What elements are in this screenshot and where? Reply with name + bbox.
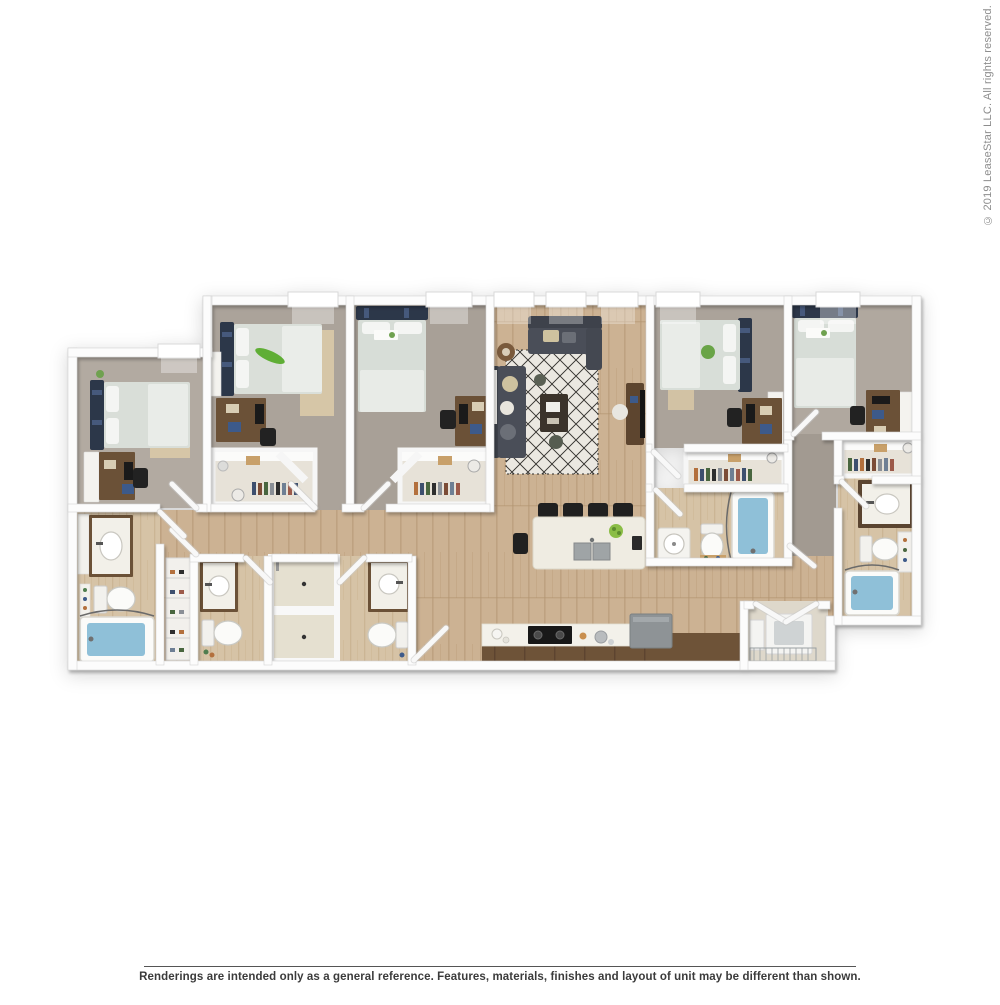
toilet	[701, 524, 723, 559]
pedestal-sink	[658, 528, 690, 560]
toilet	[368, 622, 408, 648]
window	[288, 292, 338, 324]
toilet	[860, 536, 898, 562]
bar-stool	[613, 503, 633, 518]
kettle	[595, 631, 607, 643]
chair	[850, 406, 865, 425]
footer-divider	[144, 966, 856, 967]
fruit-bowl	[609, 524, 623, 538]
shower-stall-upper	[271, 557, 337, 609]
vanity	[89, 515, 133, 577]
drain	[302, 635, 306, 639]
chair	[727, 408, 742, 427]
copyright-watermark: © 2019 LeaseStar LLC. All rights reserve…	[982, 14, 994, 226]
bar-stool	[538, 503, 558, 518]
chair	[260, 428, 276, 446]
window	[546, 292, 586, 324]
disclaimer-text: Renderings are intended only as a genera…	[0, 971, 1000, 983]
bed	[356, 306, 428, 412]
chair	[133, 468, 148, 488]
bar-stool	[513, 533, 528, 554]
toilet	[202, 620, 242, 646]
bathroom-3	[368, 560, 410, 658]
shelf-ladder	[898, 532, 912, 572]
bathtub	[80, 610, 154, 662]
footer: Renderings are intended only as a genera…	[0, 966, 1000, 983]
shower-stall-lower	[271, 612, 337, 661]
bar-stool	[588, 503, 608, 518]
bed	[220, 322, 322, 396]
bathroom-2	[200, 560, 242, 658]
bed	[660, 318, 752, 392]
coffee-table	[540, 394, 568, 432]
plant	[701, 345, 715, 359]
left-corridor	[166, 558, 192, 660]
bar-stool	[563, 503, 583, 518]
shower-head	[276, 561, 279, 571]
window	[426, 292, 472, 324]
island-sink	[574, 543, 591, 560]
drain	[302, 582, 306, 586]
range	[528, 626, 572, 644]
throw-pillow	[534, 374, 546, 386]
window	[816, 292, 860, 324]
window	[494, 292, 534, 324]
bathtub	[845, 565, 899, 615]
vanity	[200, 560, 238, 612]
door-bedroom-4	[654, 452, 678, 476]
chair	[440, 410, 456, 429]
bathtub	[727, 492, 775, 560]
vanity	[368, 560, 410, 612]
window	[656, 292, 700, 324]
toilet	[94, 586, 135, 613]
closet-bedroom-4	[686, 450, 784, 486]
closet-bedroom-3	[390, 450, 488, 504]
dish	[492, 629, 502, 639]
pot	[580, 633, 587, 640]
faucet	[96, 542, 103, 545]
closet-bedroom-5	[842, 440, 918, 476]
window	[598, 292, 638, 324]
floor-plan-rendering	[0, 0, 1000, 1000]
right-hall-floor	[788, 434, 836, 564]
window	[158, 344, 200, 373]
tub-faucet	[89, 637, 94, 642]
